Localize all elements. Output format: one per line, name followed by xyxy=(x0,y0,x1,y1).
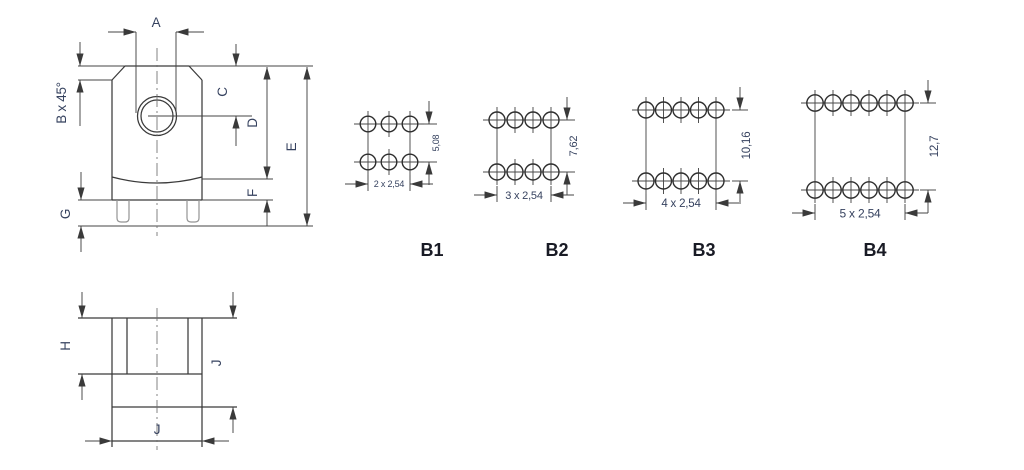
row-spacing-label: 5,08 xyxy=(431,134,441,151)
dim-label-g: G xyxy=(58,209,73,219)
row-spacing-label: 7,62 xyxy=(568,136,580,157)
footprint-b2: 7,623 x 2,54 xyxy=(474,97,580,202)
footprint-b1: 5,082 x 2,54 xyxy=(345,101,441,191)
dim-label-f: F xyxy=(245,189,260,197)
side-view: H J J xyxy=(58,292,237,450)
dim-label-c: C xyxy=(215,87,230,97)
pin-pitch-label: 2 x 2,54 xyxy=(374,179,405,189)
dim-label-j-height: J xyxy=(209,360,224,366)
dim-label-e: E xyxy=(284,142,299,151)
footprint-b3: 10,164 x 2,54 xyxy=(623,87,753,210)
dim-label-d: D xyxy=(245,118,260,128)
front-view: A B x 45° C D E F G xyxy=(54,15,313,252)
dim-label-chamfer: B x 45° xyxy=(54,82,69,124)
technical-drawing-page: A B x 45° C D E F G xyxy=(0,0,1024,470)
footprint-title-b3: B3 xyxy=(692,240,715,260)
pin-pitch-label: 4 x 2,54 xyxy=(661,198,701,210)
chamfer-left xyxy=(112,66,125,80)
dim-label-j-width: J xyxy=(154,422,160,437)
pin-pitch-label: 5 x 2,54 xyxy=(839,206,881,220)
pin-right xyxy=(187,200,199,222)
footprint-title-b2: B2 xyxy=(545,240,568,260)
technical-drawing: A B x 45° C D E F G xyxy=(0,0,1024,470)
footprint-title-b4: B4 xyxy=(863,240,886,260)
dim-label-a: A xyxy=(152,15,161,30)
pin-pitch-label: 3 x 2,54 xyxy=(505,190,543,202)
chamfer-right xyxy=(189,66,202,80)
dim-label-h: H xyxy=(58,341,73,350)
row-spacing-label: 12,7 xyxy=(929,136,941,158)
footprint-b4: 12,75 x 2,54 xyxy=(792,80,941,220)
footprint-title-b1: B1 xyxy=(420,240,443,260)
pin-left xyxy=(117,200,129,222)
row-spacing-label: 10,16 xyxy=(741,132,753,160)
